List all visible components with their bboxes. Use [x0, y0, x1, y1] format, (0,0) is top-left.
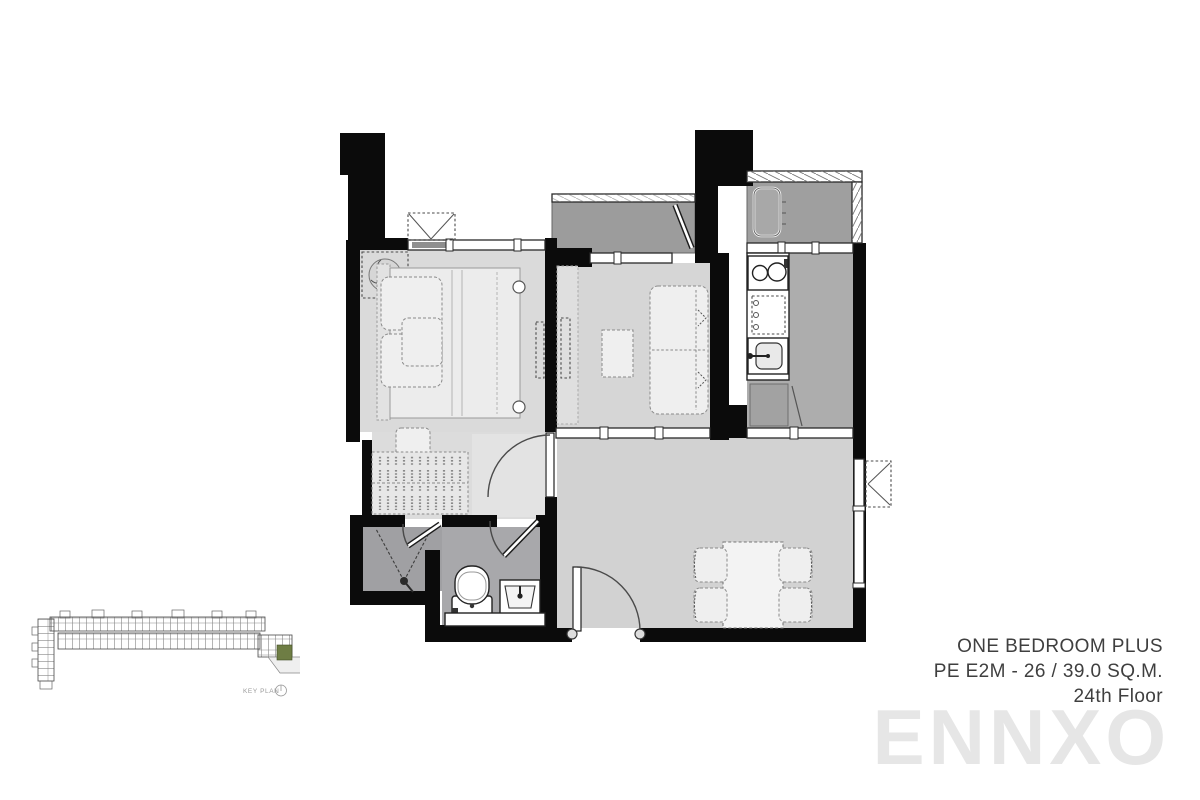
key-plan: KEY PLAN [30, 605, 300, 705]
balcony-window [590, 253, 672, 263]
stove [748, 256, 788, 290]
key-plan-label: KEY PLAN [243, 688, 279, 695]
basin-vanity [500, 580, 540, 614]
dining-chair [779, 588, 812, 622]
dining-chair [694, 548, 727, 582]
living-partition-window [556, 428, 710, 438]
tv-console [557, 266, 578, 424]
kitchen-sink [747, 338, 788, 374]
kitchen-window [747, 243, 853, 253]
living-window-small [854, 459, 864, 507]
key-plan-caption: KEY PLAN [243, 685, 287, 696]
unit-type-title: ONE BEDROOM PLUS [934, 634, 1163, 659]
key-plan-building [32, 610, 300, 689]
ledge-ac-condenser [754, 188, 786, 236]
bed-post [513, 281, 525, 293]
unit-code-area: PE E2M - 26 / 39.0 SQ.M. [934, 659, 1163, 684]
floor-plan-page: KEY PLAN ONE BEDROOM PLUS PE E2M - 26 / … [0, 0, 1200, 800]
bedroom-ac-condenser [408, 213, 455, 240]
double-bed [377, 264, 525, 420]
living-ac-condenser [866, 461, 891, 507]
bed-post [513, 401, 525, 413]
bedroom-corridor [472, 434, 545, 517]
vanity-counter [445, 613, 545, 626]
dining-chair [779, 548, 812, 582]
living-window-large [854, 509, 864, 585]
pillow-small [402, 318, 442, 366]
key-plan-unit-highlight [277, 645, 292, 660]
watermark: ENNXO [873, 698, 1170, 776]
wardrobe [372, 452, 468, 514]
dining-chair [694, 588, 727, 622]
dining-table [723, 542, 783, 628]
toilet [452, 566, 492, 616]
sofa-bed [650, 286, 708, 414]
coffee-table [602, 330, 633, 377]
kitchen-partition-window [747, 428, 853, 438]
